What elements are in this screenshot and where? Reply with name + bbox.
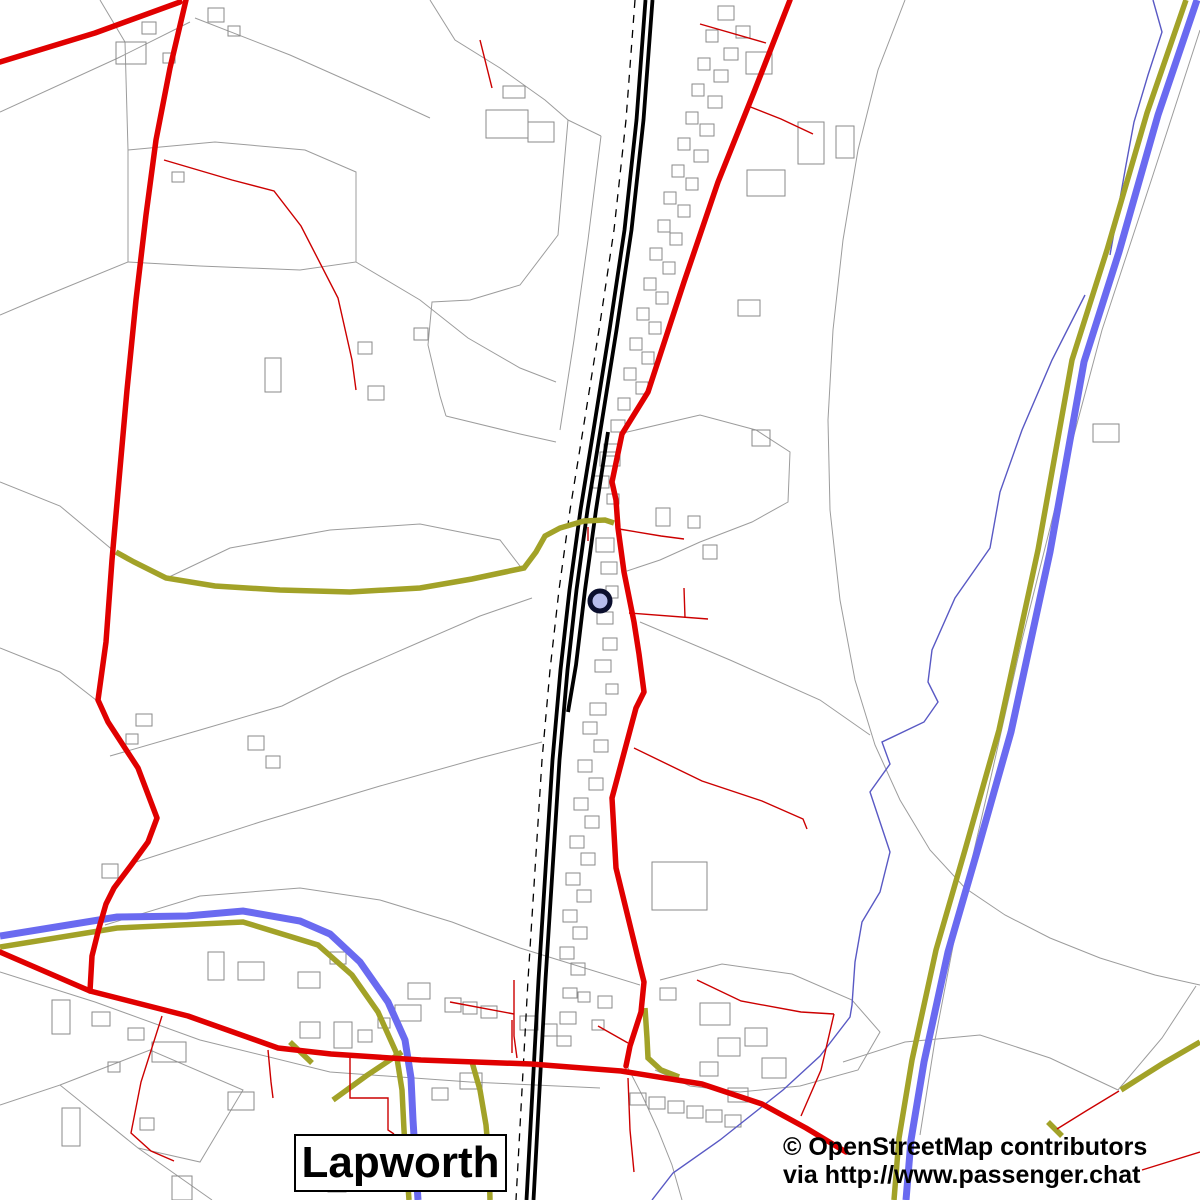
building-outline (172, 172, 184, 182)
building-outline (747, 170, 785, 196)
minor-road-line (801, 1014, 834, 1116)
building-outline (566, 873, 580, 885)
building-outline (266, 756, 280, 768)
building-outline (597, 612, 613, 624)
building-outline (248, 736, 264, 750)
building-outline (598, 996, 612, 1008)
building-outline (687, 1106, 703, 1118)
building-outline (752, 430, 770, 446)
field-boundary-line (167, 524, 523, 578)
building-outline (706, 1110, 722, 1122)
building-outline (142, 22, 156, 34)
building-outline (698, 58, 710, 70)
building-outline (714, 70, 728, 82)
building-outline (140, 1118, 154, 1130)
minor-road-line (634, 748, 807, 829)
building-outline (836, 126, 854, 158)
building-outline (543, 1024, 557, 1036)
field-boundary-line (0, 648, 96, 700)
building-outline (358, 1030, 372, 1042)
building-outline (601, 562, 617, 574)
attribution-line2: via http://www.passenger.chat (783, 1161, 1147, 1189)
map-canvas[interactable] (0, 0, 1200, 1200)
field-boundary-line (828, 0, 1200, 985)
building-outline (670, 233, 682, 245)
building-outline (606, 684, 618, 694)
building-outline (238, 962, 264, 980)
footpath-line (116, 520, 614, 592)
building-outline (700, 1062, 718, 1076)
building-outline (52, 1000, 70, 1034)
minor-road-line (480, 40, 492, 88)
building-outline (62, 1108, 80, 1146)
building-outline (463, 1002, 477, 1014)
station-marker[interactable] (590, 591, 610, 611)
attribution: © OpenStreetMap contributors via http://… (783, 1133, 1147, 1189)
building-outline (585, 816, 599, 828)
building-outline (265, 358, 281, 392)
building-outline (664, 192, 676, 204)
building-outline (718, 6, 734, 20)
footpath-line (1121, 1042, 1200, 1090)
building-outline (603, 638, 617, 650)
field-boundary-line (446, 416, 556, 442)
building-outline (660, 988, 676, 1000)
building-outline (298, 972, 320, 988)
building-outline (577, 890, 591, 902)
building-outline (678, 138, 690, 150)
building-outline (208, 952, 224, 980)
building-outline (300, 1022, 320, 1038)
field-boundary-line (920, 30, 1200, 1135)
building-outline (136, 714, 152, 726)
building-outline (126, 734, 138, 744)
field-boundary-line (0, 0, 128, 315)
attribution-line1: © OpenStreetMap contributors (783, 1133, 1147, 1161)
minor-road-line (598, 1026, 628, 1043)
building-outline (152, 1042, 186, 1062)
field-boundary-line (60, 1050, 243, 1162)
footpath-line (645, 1008, 679, 1077)
minor-road-line (514, 980, 517, 1058)
building-outline (686, 178, 698, 190)
building-outline (573, 927, 587, 939)
building-outline (724, 48, 738, 60)
building-outline (694, 150, 708, 162)
building-outline (581, 853, 595, 865)
field-boundary-line (627, 1066, 682, 1200)
building-outline (718, 1038, 740, 1056)
building-outline (738, 300, 760, 316)
building-outline (102, 864, 118, 878)
building-outline (570, 836, 584, 848)
building-outline (528, 122, 554, 142)
building-outline (563, 988, 577, 998)
field-boundary-line (133, 742, 542, 863)
building-outline (637, 308, 649, 320)
building-outline (563, 910, 577, 922)
field-boundary-line (0, 1085, 212, 1200)
field-boundary-line (560, 136, 601, 430)
field-boundary-line (356, 262, 556, 382)
building-outline (128, 1028, 144, 1040)
field-boundary-line (568, 120, 601, 136)
building-outline (116, 42, 146, 64)
building-outline (445, 998, 461, 1012)
map-viewport: Lapworth © OpenStreetMap contributors vi… (0, 0, 1200, 1200)
building-outline (408, 983, 430, 999)
building-outline (595, 660, 611, 672)
building-outline (1093, 424, 1119, 442)
building-outline (700, 1003, 730, 1025)
stream-line (652, 295, 1085, 1200)
building-outline (706, 30, 718, 42)
building-outline (678, 205, 690, 217)
building-outline (644, 278, 656, 290)
minor-road-line (164, 160, 356, 390)
field-boundary-line (1118, 986, 1196, 1090)
building-outline (368, 386, 384, 400)
field-boundary-line (640, 622, 870, 735)
building-outline (630, 338, 642, 350)
minor-road-line (131, 1016, 174, 1161)
field-boundary-line (0, 482, 115, 552)
minor-road-line (1142, 1152, 1200, 1170)
field-boundary-line (623, 415, 790, 572)
field-boundary-line (428, 0, 568, 416)
building-outline (686, 112, 698, 124)
building-outline (208, 8, 224, 22)
major-road-line (0, 2, 180, 62)
building-outline (172, 1176, 192, 1200)
building-outline (590, 703, 606, 715)
field-boundary-line (195, 18, 430, 118)
building-outline (624, 368, 636, 380)
building-outline (92, 1012, 110, 1026)
building-outline (642, 352, 654, 364)
building-outline (414, 328, 428, 340)
building-outline (574, 798, 588, 810)
building-outline (228, 1092, 254, 1110)
minor-road-line (628, 1078, 634, 1172)
building-outline (700, 124, 714, 136)
building-outline (708, 96, 722, 108)
field-boundary-line (110, 598, 532, 756)
building-outline (703, 545, 717, 559)
building-outline (557, 1036, 571, 1046)
building-outline (692, 84, 704, 96)
minor-road-line (629, 613, 708, 619)
place-label-lapworth: Lapworth (294, 1134, 507, 1192)
building-outline (596, 538, 614, 552)
minor-road-line (619, 529, 684, 539)
building-outline (649, 322, 661, 334)
building-outline (583, 722, 597, 734)
field-boundary-line (843, 1035, 1118, 1090)
building-outline (762, 1058, 786, 1078)
building-outline (745, 1028, 767, 1046)
building-outline (668, 1101, 684, 1113)
canal-line (906, 0, 1197, 1200)
building-outline (589, 778, 603, 790)
building-outline (672, 165, 684, 177)
building-outline (486, 110, 528, 138)
building-outline (560, 947, 574, 959)
building-outline (656, 508, 670, 526)
building-outline (560, 1012, 576, 1024)
building-outline (652, 862, 707, 910)
building-outline (432, 1088, 448, 1100)
building-outline (578, 760, 592, 772)
minor-road-line (684, 588, 685, 618)
building-outline (658, 220, 670, 232)
building-outline (334, 1022, 352, 1048)
building-outline (358, 342, 372, 354)
field-boundary-line (128, 142, 356, 270)
building-outline (688, 516, 700, 528)
building-outline (650, 248, 662, 260)
building-outline (503, 86, 525, 98)
field-boundary-line (105, 888, 640, 985)
building-outline (663, 262, 675, 274)
building-outline (656, 292, 668, 304)
building-outline (594, 740, 608, 752)
building-outline (618, 398, 630, 410)
building-outline (578, 992, 590, 1002)
minor-road-line (700, 24, 766, 43)
place-label-text: Lapworth (302, 1141, 500, 1185)
minor-road-line (1057, 1091, 1119, 1129)
minor-road-line (697, 980, 834, 1014)
building-outline (649, 1097, 665, 1109)
minor-road-line (748, 106, 813, 134)
